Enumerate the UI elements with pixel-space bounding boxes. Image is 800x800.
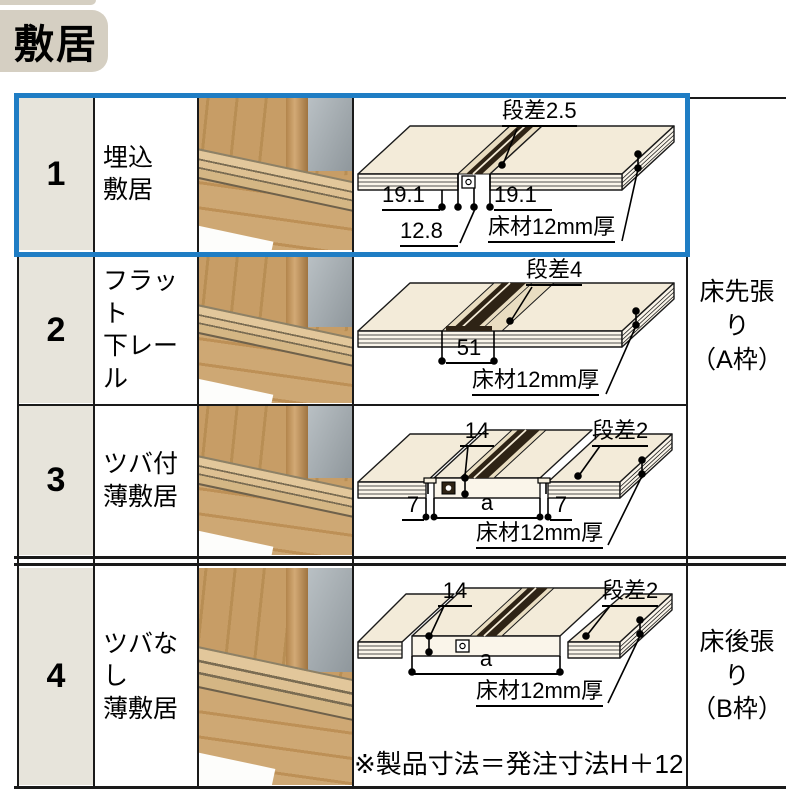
- row-photo: [199, 257, 352, 403]
- section-a-label: 床先張り （A枠）: [688, 99, 786, 555]
- door-glass: [308, 406, 352, 478]
- section-a-frame: （A枠）: [691, 344, 783, 378]
- section-b-label: 床後張り （B枠）: [688, 567, 786, 786]
- dim-label-center: a: [436, 492, 538, 519]
- row-photo: [199, 568, 352, 785]
- row-name: ツバ付: [103, 448, 197, 481]
- grid-line: [17, 255, 19, 786]
- row-name: ツバなし: [103, 628, 197, 693]
- dim-label-top: 14: [438, 580, 472, 607]
- cross-section-diagram-3: 14 段差2 7 a 7 床材12mm厚: [354, 406, 684, 555]
- product-dimension-note: ※製品寸法＝発注寸法H＋12: [354, 744, 683, 781]
- row-number-cell: 1: [19, 98, 93, 250]
- row-number: 4: [47, 657, 66, 696]
- row-name-cell: ツバ付 薄敷居: [95, 406, 197, 555]
- door-glass: [308, 257, 352, 327]
- step-label: 段差2: [602, 580, 658, 607]
- cross-section-diagram-1: 段差2.5 19.1 19.1 12.8 床材12mm厚: [354, 98, 684, 250]
- section-a-name: 床先張り: [688, 276, 786, 344]
- row-name: 下レール: [103, 330, 197, 395]
- door-glass: [308, 568, 352, 672]
- section-b-name: 床後張り: [688, 626, 786, 694]
- row-number-cell: 2: [19, 257, 93, 403]
- floor-thickness-label: 床材12mm厚: [472, 369, 599, 396]
- step-label: 段差2: [592, 420, 648, 447]
- row-photo: [199, 98, 352, 250]
- row-number-cell: 3: [19, 406, 93, 555]
- cross-section-diagram-4: 14 段差2 a 床材12mm厚 ※製品寸法＝発注寸法H＋12: [354, 568, 684, 785]
- grid-line: [197, 97, 199, 786]
- row-number: 3: [47, 461, 66, 500]
- grid-line: [14, 786, 786, 789]
- row-number: 1: [47, 155, 66, 194]
- dim-label-center: 51: [446, 337, 492, 364]
- door-glass: [308, 98, 352, 171]
- dim-label-top: 14: [460, 420, 494, 447]
- dim-label-right: 19.1: [494, 184, 552, 211]
- row-number: 2: [47, 311, 66, 350]
- row-name-cell: 埋込 敷居: [95, 98, 197, 250]
- grid-line: [17, 404, 688, 406]
- section-title-badge: 敷居: [0, 10, 108, 72]
- section-b-frame: （B枠）: [691, 693, 783, 727]
- row-name: 薄敷居: [103, 693, 197, 726]
- row-name: フラット: [103, 265, 197, 330]
- dim-label-left: 19.1: [382, 184, 440, 211]
- row-name: 薄敷居: [103, 481, 197, 514]
- floor-thickness-label: 床材12mm厚: [488, 216, 615, 243]
- floor-thickness-label: 床材12mm厚: [476, 522, 603, 549]
- step-label: 段差2.5: [502, 100, 577, 127]
- cross-section-diagram-2: 段差4 51 床材12mm厚: [354, 257, 684, 403]
- row-name: 敷居: [103, 174, 197, 207]
- grid-line: [686, 97, 688, 786]
- dim-label-right: 7: [550, 494, 572, 521]
- dim-label-center: a: [414, 648, 558, 675]
- row-name-cell: ツバなし 薄敷居: [95, 568, 197, 785]
- previous-section-badge-edge: [0, 0, 96, 5]
- section-title: 敷居: [0, 12, 98, 70]
- catalog-sheet: 敷居 1 埋込 敷居: [0, 0, 800, 800]
- step-label: 段差4: [526, 259, 582, 286]
- floor-thickness-label: 床材12mm厚: [476, 680, 603, 707]
- section-divider-line: [14, 556, 786, 559]
- row-number-cell: 4: [19, 568, 93, 785]
- row-photo: [199, 406, 352, 555]
- grid-line: [93, 97, 95, 786]
- grid-line: [352, 97, 354, 786]
- section-divider-line: [14, 563, 786, 566]
- grid-line: [686, 97, 786, 99]
- dim-label-left: 7: [402, 494, 424, 521]
- dim-label-bottom: 12.8: [400, 220, 458, 247]
- row-name: 埋込: [103, 142, 197, 175]
- row-name-cell: フラット 下レール: [95, 257, 197, 403]
